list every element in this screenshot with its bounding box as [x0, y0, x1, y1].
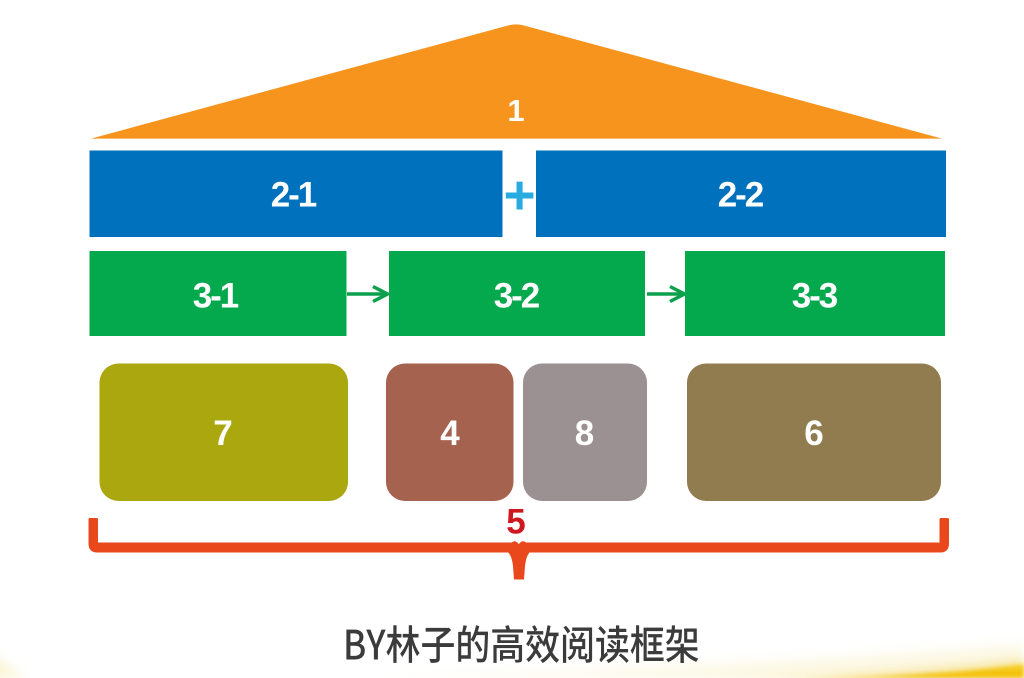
svg-text:+: + [503, 164, 535, 226]
svg-text:8: 8 [575, 414, 594, 453]
svg-text:1: 1 [507, 93, 524, 128]
svg-text:6: 6 [804, 414, 823, 453]
svg-text:3-1: 3-1 [193, 276, 240, 315]
svg-text:7: 7 [213, 414, 232, 453]
svg-text:5: 5 [506, 503, 525, 542]
svg-text:3-2: 3-2 [494, 276, 541, 315]
svg-text:2-2: 2-2 [718, 176, 765, 215]
svg-text:2-1: 2-1 [271, 176, 318, 215]
svg-text:4: 4 [440, 414, 460, 453]
svg-text:3-3: 3-3 [792, 276, 839, 315]
